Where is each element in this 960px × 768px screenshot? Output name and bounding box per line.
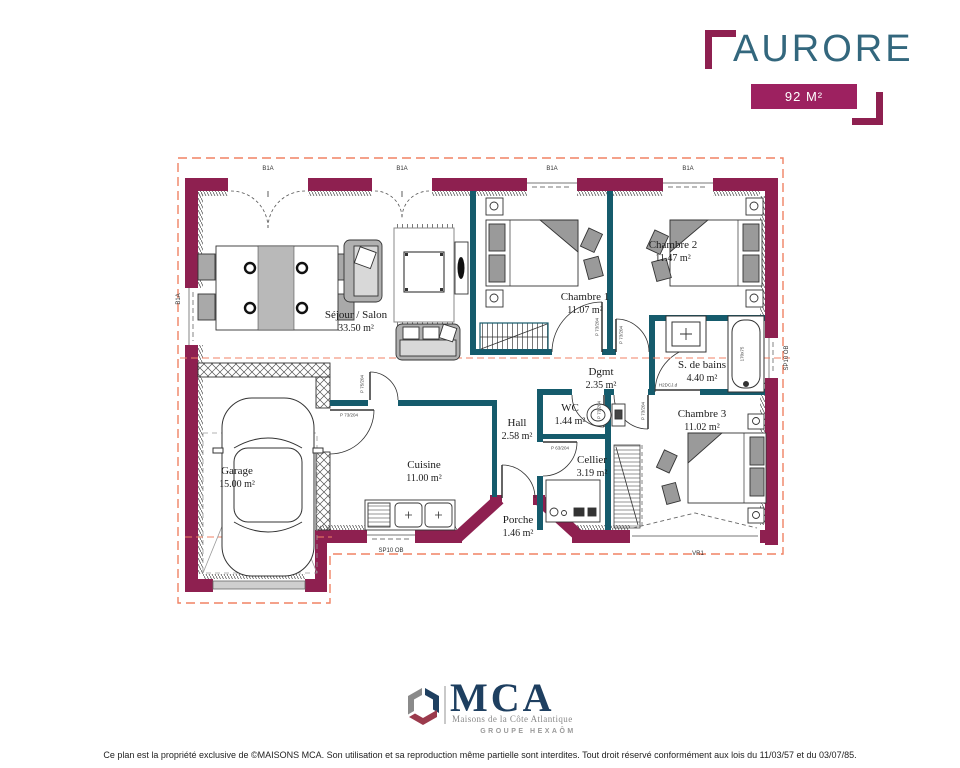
window-label: B1A <box>682 166 693 172</box>
room-label-sdb: S. de bains 4.40 m² <box>678 359 726 385</box>
logo-divider <box>444 686 446 724</box>
closet-chambre3 <box>614 445 642 528</box>
door-label: P 63/204 <box>551 446 569 451</box>
window-label: B1A <box>546 166 557 172</box>
room-label-chambre3: Chambre 3 11.02 m² <box>678 408 727 434</box>
kitchen-sink <box>365 500 455 530</box>
logo-tagline: Maisons de la Côte Atlantique <box>452 714 573 724</box>
room-label-hall: Hall 2.58 m² <box>502 417 533 443</box>
door-label: P 73/204 <box>619 326 624 344</box>
floor-plan-page: AURORE 92 M² <box>0 0 960 768</box>
french-door-arcs <box>231 191 429 228</box>
room-label-cellier: Cellier 3.19 m² <box>577 454 608 480</box>
bathtub-size-label: 170x75 <box>740 347 745 362</box>
window-label: B1A <box>176 293 182 304</box>
logo-group-name: GROUPE HEXAÔM <box>468 728 588 735</box>
room-label-dgmt: Dgmt 2.35 m² <box>586 366 617 392</box>
door-label: P 73/204 <box>340 413 358 418</box>
room-label-wc: WC 1.44 m² <box>555 402 586 428</box>
window-label: B1A <box>396 166 407 172</box>
window-label: B1A <box>262 166 273 172</box>
door-label: P 73/204 <box>595 318 600 336</box>
bathtub <box>728 316 764 392</box>
window-label: VR1 <box>692 551 704 557</box>
room-label-chambre2: Chambre 2 11.47 m² <box>649 239 698 265</box>
rug-and-coffee-table <box>394 224 454 326</box>
door-label: P 73/204 <box>641 402 646 420</box>
floor-plan-drawing <box>0 0 960 660</box>
door-label: H2DCJ.d <box>659 383 677 388</box>
room-label-chambre1: Chambre 1 11.07 m² <box>561 291 610 317</box>
room-label-garage: Garage 15.00 m² <box>219 465 255 491</box>
window-label: SP10 OB <box>378 548 403 554</box>
room-label-porche: Porche 1.46 m² <box>503 514 534 540</box>
door-label: P 73/204 <box>597 401 602 419</box>
closet-chambre1 <box>480 323 548 350</box>
sofa-vertical <box>344 240 382 302</box>
toilet <box>587 404 625 426</box>
copyright-text: Ce plan est la propriété exclusive de ©M… <box>0 750 960 760</box>
mca-cube-icon <box>406 684 442 726</box>
room-label-cuisine: Cuisine 11.00 m² <box>406 459 441 485</box>
washing-machine <box>546 480 600 522</box>
garage-door <box>213 581 305 589</box>
window-label: SP10 OB <box>784 345 790 370</box>
door-label: P 75/204 <box>360 375 365 393</box>
room-label-sejour: Séjour / Salon 33.50 m² <box>325 309 387 335</box>
sofa-horizontal <box>396 324 460 360</box>
washbasin <box>666 316 706 352</box>
tv-unit <box>455 242 468 294</box>
